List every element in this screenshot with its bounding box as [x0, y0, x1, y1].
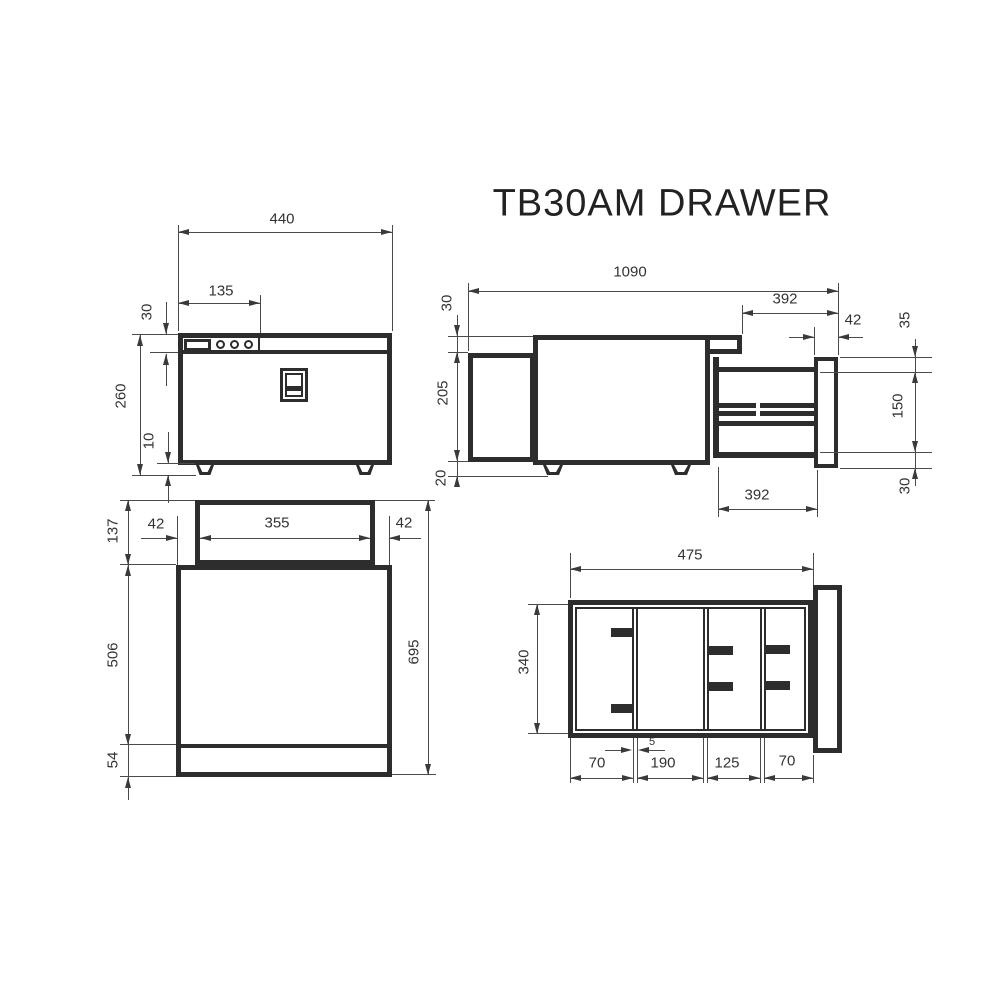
ext-line	[813, 755, 814, 783]
dim-label-back-width: 355	[264, 515, 289, 532]
dim-line	[140, 335, 141, 475]
dim-label-front-depth: 54	[105, 752, 122, 769]
front-button-1	[216, 340, 225, 349]
side-rail-mid1-right	[760, 403, 815, 408]
dim-arrow	[163, 323, 169, 334]
dim-line	[915, 339, 916, 486]
dim-label-total-depth: 695	[406, 639, 423, 664]
front-control-strip-divider	[258, 338, 260, 350]
ext-line	[120, 500, 195, 501]
ext-line	[817, 470, 818, 517]
side-rail-top	[719, 367, 815, 372]
floor-line	[448, 476, 548, 477]
side-rail-mid2-right	[760, 411, 815, 416]
side-rail-mid3	[719, 421, 815, 426]
dim-label-drawer-depth: 340	[516, 649, 533, 674]
dim-label-divider: 5	[649, 736, 655, 748]
ext-line	[813, 553, 814, 585]
dim-arrow	[125, 777, 131, 788]
dim-line	[570, 569, 813, 570]
dim-line	[537, 604, 538, 734]
ext-line	[633, 738, 634, 783]
dim-arrow	[802, 775, 813, 781]
ext-line	[375, 500, 435, 501]
dim-arrow	[454, 450, 460, 461]
dim-line	[742, 313, 838, 314]
dim-arrow	[621, 747, 632, 753]
ext-line	[157, 463, 195, 464]
drawing-title: TB30AM DRAWER	[493, 183, 832, 226]
ext-line	[703, 738, 704, 783]
front-handle-grip	[287, 386, 301, 391]
dim-arrow	[806, 506, 817, 512]
ext-line	[838, 283, 839, 355]
dim-arrow	[827, 288, 838, 294]
dim-arrow	[125, 500, 131, 511]
dim-arrow	[622, 775, 633, 781]
dim-label-back-depth: 137	[105, 518, 122, 543]
dim-label-drawer-width: 475	[677, 547, 702, 564]
front-button-2	[230, 340, 239, 349]
dim-arrow	[802, 566, 813, 572]
dim-arrow	[178, 300, 189, 306]
ext-line	[392, 225, 393, 331]
dim-line	[178, 303, 260, 304]
dim-line	[649, 750, 665, 751]
dim-label-body-height: 205	[435, 380, 452, 405]
dim-arrow	[912, 441, 918, 452]
dim-label-total-height: 260	[113, 383, 130, 408]
dim-arrow	[454, 476, 460, 487]
front-button-3	[244, 340, 253, 349]
dim-label-comp2: 190	[650, 755, 675, 772]
drawer-box-inner	[575, 607, 806, 731]
side-rail-mid1-left	[719, 403, 756, 408]
dim-label-left-offset: 42	[148, 516, 165, 533]
dim-label-ext-bottom: 392	[744, 487, 769, 504]
dim-label-panel-height: 30	[139, 304, 156, 321]
side-back-box	[468, 353, 535, 462]
dim-arrow	[125, 554, 131, 565]
ext-line	[177, 516, 178, 565]
dim-arrow	[381, 229, 392, 235]
dim-arrow	[637, 775, 648, 781]
dim-label-front-thickness: 42	[845, 312, 862, 329]
drawer-clip	[611, 704, 632, 713]
dim-arrow	[718, 506, 729, 512]
dim-arrow	[570, 566, 581, 572]
dim-label-total-length: 1090	[613, 264, 646, 281]
drawer-divider-1b	[636, 609, 638, 731]
ext-line	[742, 305, 743, 334]
ext-line	[260, 295, 261, 333]
dim-arrow	[178, 229, 189, 235]
dim-arrow	[425, 500, 431, 511]
drawer-divider-2a	[703, 609, 705, 731]
dim-arrow	[454, 352, 460, 363]
dim-label-rail-height: 150	[890, 393, 907, 418]
dim-arrow	[137, 464, 143, 475]
drawer-clip	[766, 681, 790, 690]
plan-front-line	[181, 744, 387, 748]
dim-label-side-foot: 20	[433, 470, 450, 487]
ext-line	[528, 604, 568, 605]
technical-drawing: TB30AM DRAWER 440 135	[0, 0, 1000, 1000]
dim-arrow	[200, 535, 211, 541]
dim-arrow	[534, 604, 540, 615]
dim-label-width: 440	[269, 211, 294, 228]
plan-back-section	[195, 500, 375, 565]
dim-arrow	[838, 334, 849, 340]
dim-line	[200, 538, 370, 539]
side-rail-bottom	[719, 452, 815, 458]
dim-label-comp4: 70	[779, 753, 796, 770]
front-display-window	[184, 339, 211, 351]
ext-line	[528, 733, 568, 734]
dim-label-top-offset: 35	[897, 312, 914, 329]
dim-arrow	[912, 372, 918, 383]
dim-arrow	[638, 747, 649, 753]
dim-line	[128, 500, 129, 800]
dim-label-comp3: 125	[714, 755, 739, 772]
ext-line	[150, 352, 178, 353]
drawer-divider-3b	[764, 609, 766, 731]
ext-line	[570, 553, 571, 598]
ext-line	[840, 357, 932, 358]
dim-arrow	[707, 775, 718, 781]
dim-label-control-width: 135	[208, 283, 233, 300]
dim-label-foot-height: 10	[141, 433, 158, 450]
ext-line	[820, 452, 932, 453]
dim-label-body-depth: 506	[105, 642, 122, 667]
ext-line	[468, 283, 469, 351]
drawer-front-panel	[813, 585, 842, 753]
dim-arrow	[165, 452, 171, 463]
side-lip-bottom	[708, 349, 742, 354]
dim-line	[605, 750, 622, 751]
front-handle-inner	[285, 373, 303, 397]
dim-arrow	[803, 334, 814, 340]
drawer-clip	[611, 628, 632, 637]
drawer-divider-1a	[632, 609, 634, 731]
ext-line	[760, 738, 761, 783]
dim-arrow	[165, 475, 171, 486]
dim-label-ext-top: 392	[772, 291, 797, 308]
dim-arrow	[166, 535, 177, 541]
dim-arrow	[125, 734, 131, 745]
dim-arrow	[454, 325, 460, 336]
drawer-clip	[709, 646, 733, 655]
drawer-divider-3a	[760, 609, 762, 731]
dim-arrow	[749, 775, 760, 781]
dim-label-bottom-offset: 30	[897, 478, 914, 495]
ext-line	[389, 516, 390, 565]
dim-arrow	[692, 775, 703, 781]
dim-label-right-offset: 42	[396, 515, 413, 532]
drawer-clip	[709, 682, 733, 691]
dim-arrow	[468, 288, 479, 294]
side-rail-mid2-left	[719, 411, 756, 416]
dim-arrow	[912, 346, 918, 357]
dim-arrow	[137, 335, 143, 346]
dim-arrow	[742, 310, 753, 316]
ext-line	[132, 475, 196, 476]
dim-label-comp1: 70	[589, 755, 606, 772]
dim-label-lid-height: 30	[439, 295, 456, 312]
dim-arrow	[125, 565, 131, 576]
drawer-clip	[766, 645, 790, 654]
dim-line	[428, 500, 429, 775]
front-control-strip-line	[183, 350, 387, 354]
ext-line	[814, 327, 815, 355]
dim-arrow	[163, 354, 169, 365]
side-body	[533, 335, 710, 465]
ext-line	[718, 467, 719, 517]
dim-arrow	[389, 535, 400, 541]
ext-line	[392, 774, 436, 775]
dim-arrow	[570, 775, 581, 781]
ext-line	[840, 468, 932, 469]
ext-line	[448, 461, 468, 462]
dim-arrow	[764, 775, 775, 781]
ext-line	[448, 336, 533, 337]
dim-arrow	[827, 310, 838, 316]
dim-arrow	[249, 300, 260, 306]
drawer-divider-2b	[707, 609, 709, 731]
dim-arrow	[359, 535, 370, 541]
dim-line	[178, 232, 393, 233]
ext-line	[178, 225, 179, 331]
dim-line	[718, 509, 817, 510]
